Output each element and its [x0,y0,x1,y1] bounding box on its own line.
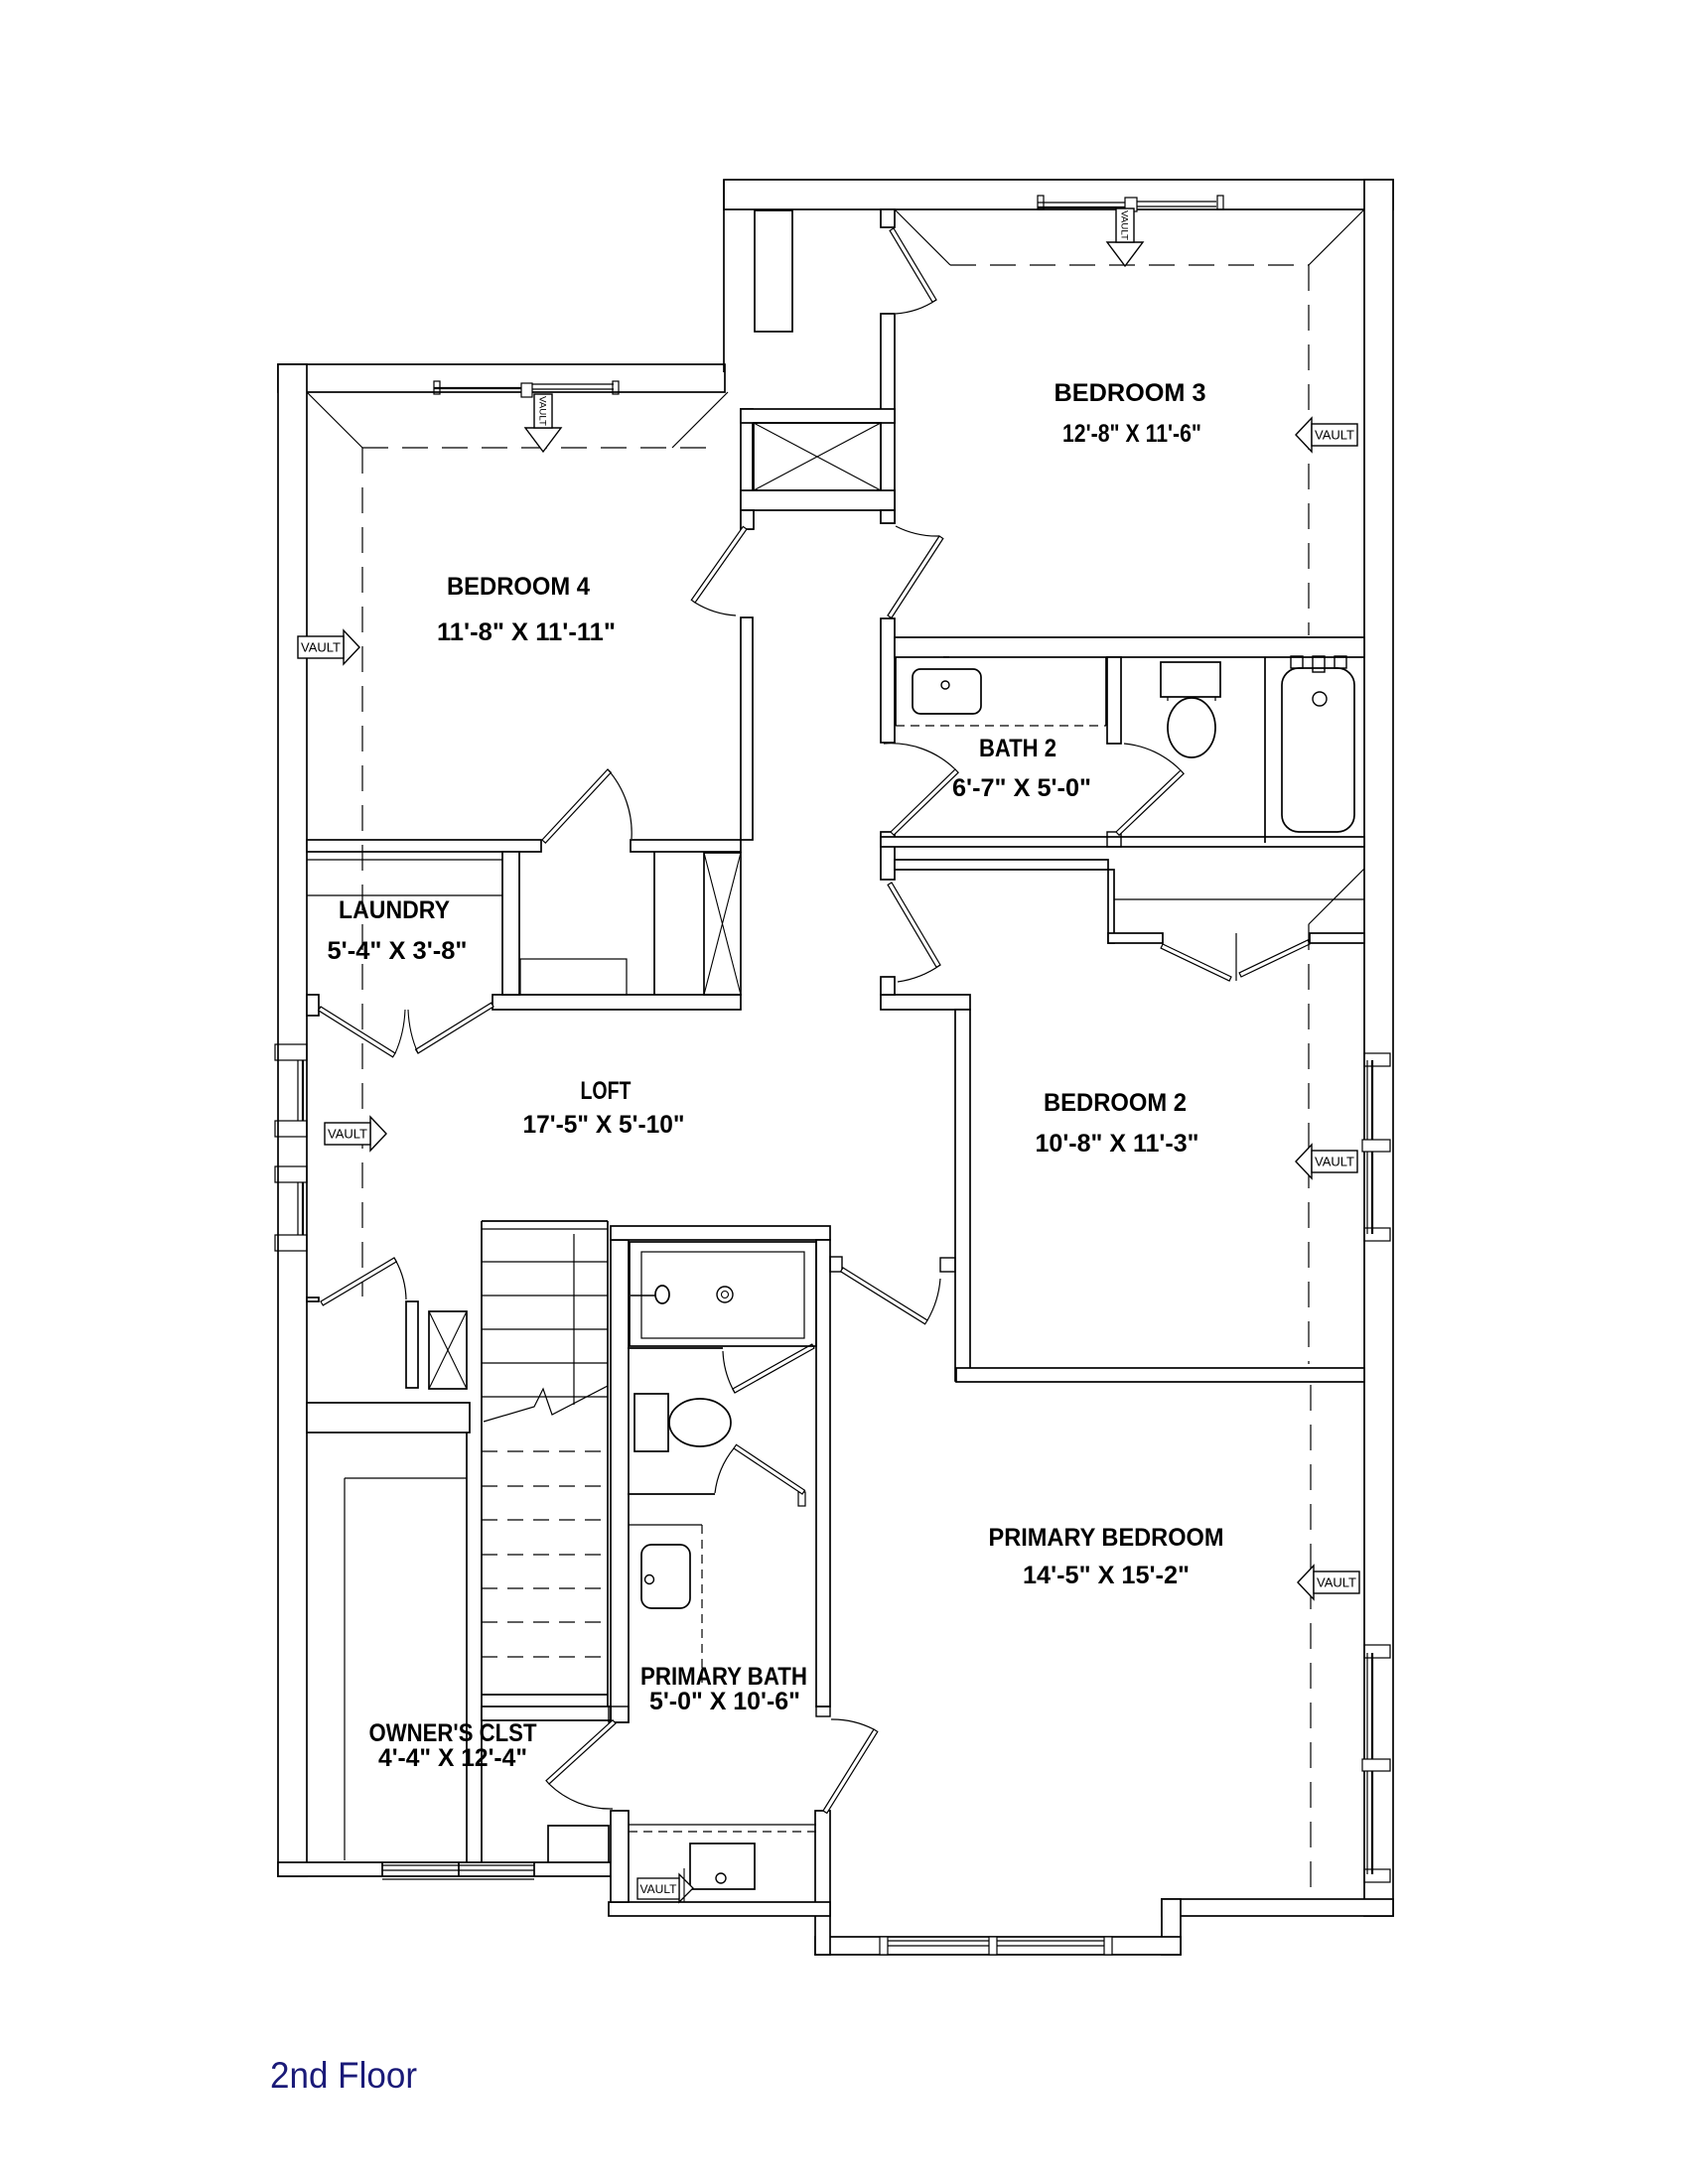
svg-text:LOFT: LOFT [581,1077,632,1105]
svg-text:6'-7" X 5'-0": 6'-7" X 5'-0" [952,774,1091,802]
svg-text:PRIMARY BATH: PRIMARY BATH [640,1663,807,1691]
svg-text:VAULT: VAULT [1315,428,1354,443]
svg-text:12'-8" X 11'-6": 12'-8" X 11'-6" [1062,420,1201,448]
svg-text:VAULT: VAULT [537,396,548,426]
svg-text:OWNER'S CLST: OWNER'S CLST [369,1719,537,1747]
svg-text:VAULT: VAULT [1119,210,1130,240]
svg-text:LAUNDRY: LAUNDRY [339,896,450,924]
svg-text:2nd Floor: 2nd Floor [270,2055,417,2096]
svg-text:10'-8" X 11'-3": 10'-8" X 11'-3" [1036,1130,1199,1158]
svg-text:14'-5" X 15'-2": 14'-5" X 15'-2" [1023,1562,1190,1589]
svg-text:VAULT: VAULT [328,1127,367,1142]
svg-text:BEDROOM 3: BEDROOM 3 [1055,379,1206,407]
svg-text:BEDROOM 2: BEDROOM 2 [1044,1089,1187,1117]
svg-text:VAULT: VAULT [301,640,341,655]
svg-text:VAULT: VAULT [1317,1575,1356,1590]
svg-text:5'-4" X 3'-8": 5'-4" X 3'-8" [328,937,468,965]
svg-text:17'-5" X 5'-10": 17'-5" X 5'-10" [523,1111,685,1139]
svg-text:VAULT: VAULT [1315,1155,1354,1169]
svg-text:11'-8" X 11'-11": 11'-8" X 11'-11" [437,618,616,646]
svg-text:BATH 2: BATH 2 [979,735,1056,762]
svg-text:BEDROOM 4: BEDROOM 4 [447,573,590,601]
svg-text:4'-4" X 12'-4": 4'-4" X 12'-4" [378,1744,527,1772]
svg-text:PRIMARY BEDROOM: PRIMARY BEDROOM [989,1524,1224,1552]
svg-text:5'-0" X 10'-6": 5'-0" X 10'-6" [649,1688,800,1715]
svg-text:VAULT: VAULT [640,1882,678,1896]
